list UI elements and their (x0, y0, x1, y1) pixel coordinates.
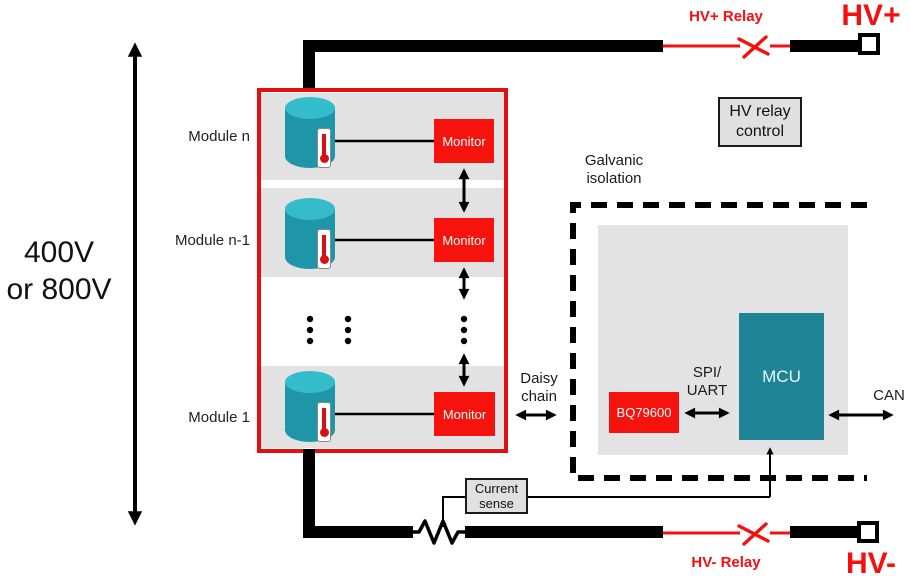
current-sense-box: Current sense (465, 478, 528, 514)
galvanic-isolation-label: Galvanic isolation (576, 152, 652, 188)
monitor-box-1: Monitor (434, 119, 494, 163)
mcu-box: MCU (739, 313, 824, 440)
hv-minus-label: HV- (838, 549, 904, 576)
hv-minus-bus-left (303, 526, 413, 538)
hv-plus-relay-contact-icon (739, 37, 768, 57)
daisy-chain-label: Daisy chain (513, 370, 565, 406)
bq79600-box: BQ79600 (609, 392, 679, 433)
module-n-label: Module n (146, 128, 250, 145)
battery-cell-icon (285, 198, 335, 270)
hv-minus-relay-label: HV- Relay (676, 554, 776, 571)
pack-voltage-label: 400V or 800V (0, 234, 118, 308)
hv-plus-bus-leg (303, 40, 315, 88)
wiring-layer (0, 0, 911, 576)
cell-top (285, 198, 335, 220)
hv-plus-terminal-icon (858, 33, 880, 55)
hv-minus-terminal-icon (857, 521, 879, 543)
continuation-dots (307, 316, 467, 344)
module-n1-label: Module n-1 (146, 232, 250, 249)
current-sense-wire-left (443, 497, 465, 527)
hv-plus-label: HV+ (838, 1, 904, 31)
shunt-resistor-symbol (413, 521, 465, 543)
hv-relay-control-box: HV relay control (718, 97, 802, 147)
hv-plus-bus (303, 40, 663, 52)
cell-top (285, 371, 335, 393)
hv-minus-relay-contact-icon (739, 524, 768, 544)
module-1-label: Module 1 (146, 409, 250, 426)
monitor-box-2: Monitor (434, 218, 494, 262)
bms-block-diagram: 400V or 800V Module n Module n-1 Module … (0, 0, 911, 576)
spi-uart-label: SPI/ UART (682, 364, 732, 400)
can-label: CAN (866, 387, 911, 405)
hv-minus-bus-leg (303, 449, 315, 526)
cell-top (285, 97, 335, 119)
battery-cell-icon (285, 371, 335, 443)
hv-plus-relay-label: HV+ Relay (676, 8, 776, 25)
monitor-box-3: Monitor (434, 392, 495, 436)
hv-plus-bus-right (790, 40, 858, 52)
battery-cell-icon (285, 97, 335, 169)
hv-minus-bus-right (790, 526, 857, 538)
hv-minus-bus-mid (465, 526, 663, 538)
